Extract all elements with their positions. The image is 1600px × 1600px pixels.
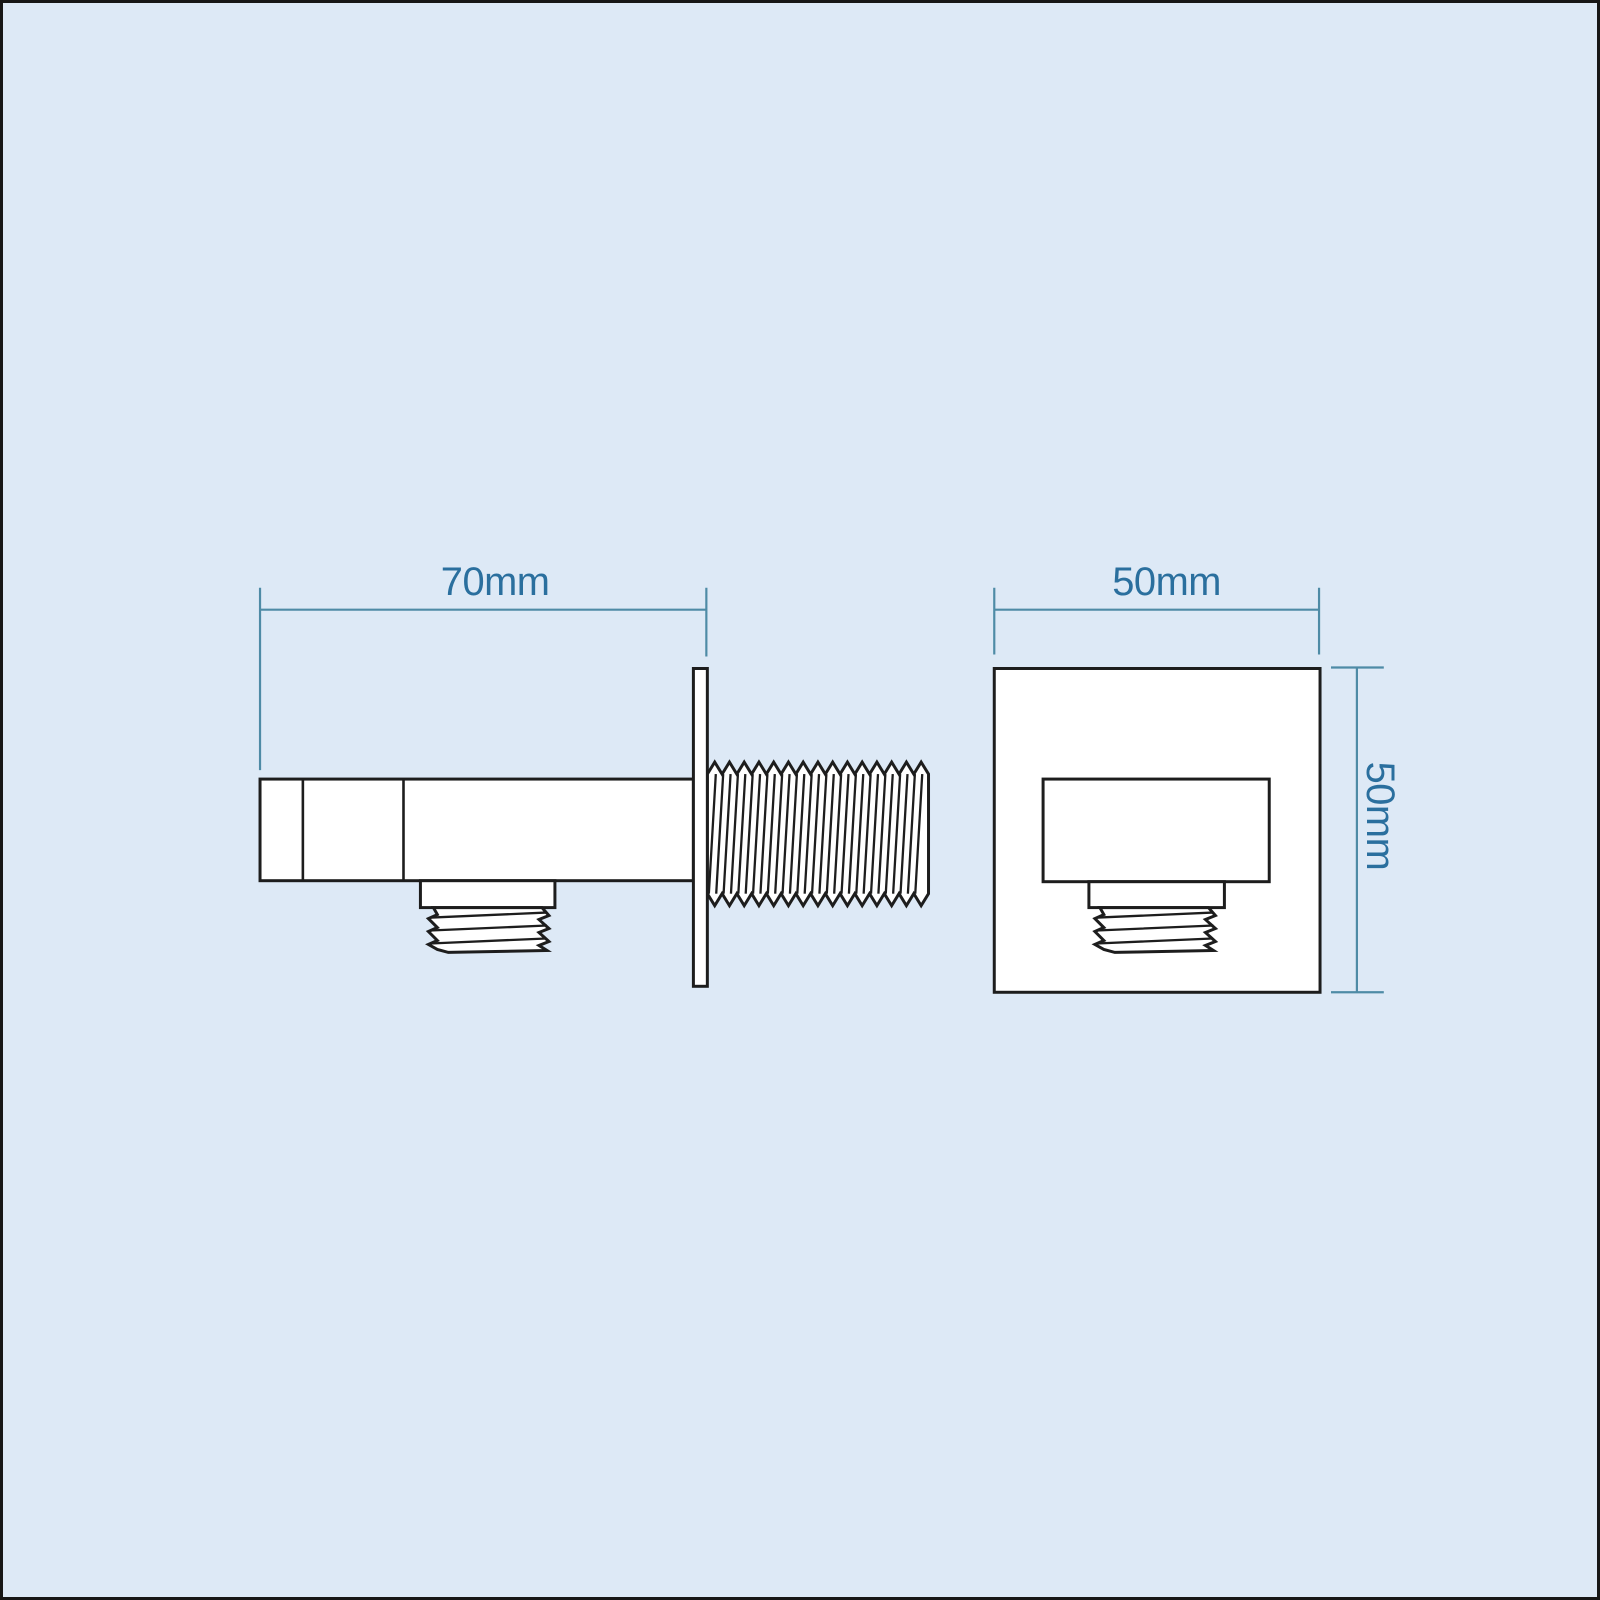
wall-plate-side — [693, 668, 707, 986]
valve-body-side — [260, 779, 693, 881]
valve-body-front — [1043, 779, 1269, 882]
dimension-side-width: 70mm — [260, 560, 706, 770]
dimension-label-front-width: 50mm — [1112, 560, 1221, 604]
dimension-front-width: 50mm — [994, 560, 1319, 655]
side-view — [260, 668, 928, 986]
dimension-front-height: 50mm — [1331, 667, 1402, 992]
outlet-collar-front — [1089, 882, 1224, 908]
front-view — [994, 668, 1320, 992]
technical-drawing: 70mm 50mm 50mm — [3, 3, 1597, 1597]
outlet-collar-side — [420, 881, 554, 908]
dimension-label-side-width: 70mm — [441, 560, 550, 604]
dimension-label-front-height: 50mm — [1358, 762, 1402, 871]
drawing-canvas: 70mm 50mm 50mm — [0, 0, 1600, 1600]
